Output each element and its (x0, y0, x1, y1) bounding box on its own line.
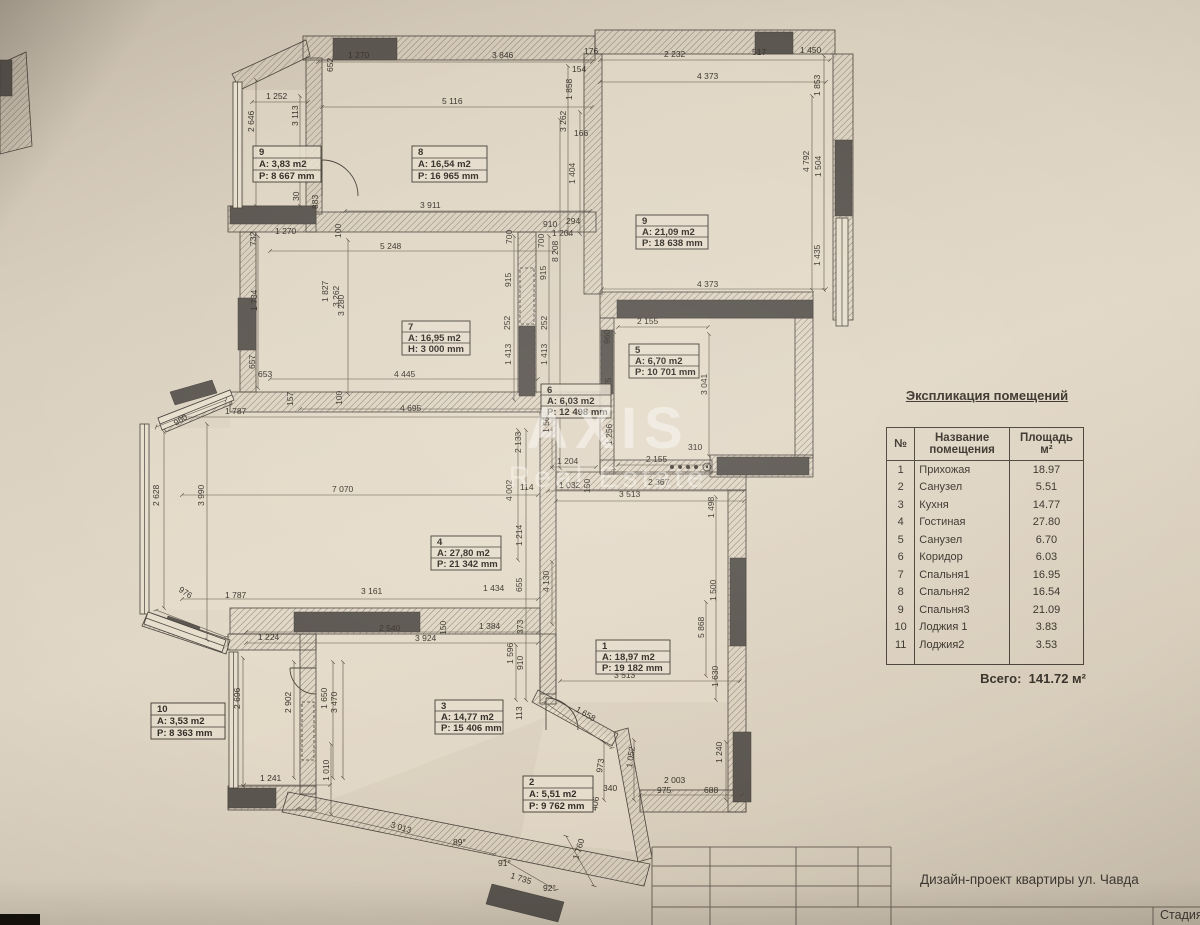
svg-text:1 252: 1 252 (266, 91, 288, 101)
room-area: A: 5,51 m2 (529, 789, 577, 800)
svg-text:294: 294 (566, 216, 580, 226)
cell-name: Гостиная (915, 514, 1010, 532)
col-header-num: № (887, 428, 915, 461)
cell-num: 2 (887, 479, 915, 497)
legend-row: 4Гостиная27.80 (887, 514, 1084, 532)
legend-row: 11Лоджия23.53 (887, 636, 1084, 654)
svg-text:4 130: 4 130 (541, 570, 551, 592)
room-perimeter: P: 10 701 mm (635, 367, 696, 378)
svg-text:1 204: 1 204 (557, 456, 579, 466)
svg-text:114: 114 (520, 482, 534, 492)
svg-text:1 413: 1 413 (539, 343, 549, 365)
svg-text:700: 700 (504, 230, 514, 244)
svg-text:1 650: 1 650 (319, 687, 329, 709)
svg-text:700: 700 (536, 234, 546, 248)
cell-num: 5 (887, 531, 915, 549)
svg-text:1 010: 1 010 (321, 759, 331, 781)
legend-total-label: Всего: (980, 671, 1021, 686)
room-number: 10 (157, 704, 168, 715)
svg-text:30: 30 (291, 191, 301, 201)
room-area: A: 27,80 m2 (437, 548, 490, 559)
svg-text:1 787: 1 787 (225, 590, 247, 600)
svg-text:4 002: 4 002 (504, 479, 514, 501)
room-number: 3 (441, 701, 446, 712)
room-label: 1 A: 18,97 m2 P: 19 182 mm (596, 640, 670, 674)
room-perimeter: P: 8 363 mm (157, 728, 212, 739)
svg-text:150: 150 (582, 479, 592, 493)
room-number: 9 (259, 147, 264, 158)
svg-text:100: 100 (333, 224, 343, 238)
svg-text:1 858: 1 858 (564, 78, 574, 100)
room-number: 2 (529, 777, 534, 788)
svg-text:1 241: 1 241 (260, 773, 282, 783)
legend-total-value: 141.72 м² (1029, 671, 1086, 686)
room-perimeter: P: 12 498 mm (547, 407, 608, 418)
svg-text:5 868: 5 868 (696, 616, 706, 638)
svg-text:113: 113 (514, 706, 524, 720)
legend-spacer-row (887, 654, 1084, 665)
project-title: Дизайн-проект квартиры ул. Чавда (920, 872, 1200, 887)
cell-num: 4 (887, 514, 915, 532)
svg-text:2 232: 2 232 (664, 49, 686, 59)
svg-text:1 504: 1 504 (813, 155, 823, 177)
cell-num: 6 (887, 549, 915, 567)
svg-text:915: 915 (503, 273, 513, 287)
svg-text:2 902: 2 902 (283, 691, 293, 713)
cell-name: Кухня (915, 496, 1010, 514)
room-label: 6 A: 6,03 m2 P: 12 498 mm (541, 384, 611, 418)
cell-area: 16.95 (1009, 566, 1083, 584)
svg-text:1 384: 1 384 (479, 621, 501, 631)
svg-text:1 270: 1 270 (348, 50, 370, 60)
room-label: 5 A: 6,70 m2 P: 10 701 mm (629, 344, 699, 378)
room-perimeter: P: 16 965 mm (418, 171, 479, 182)
legend: Экспликация помещений № Названиепомещени… (886, 388, 1088, 686)
svg-text:1 734: 1 734 (249, 289, 259, 311)
svg-text:1 256: 1 256 (604, 423, 614, 445)
room-number: 5 (635, 345, 641, 356)
cell-area: 5.51 (1009, 479, 1083, 497)
svg-text:653: 653 (258, 369, 272, 379)
svg-text:1 853: 1 853 (812, 74, 822, 96)
svg-text:2 003: 2 003 (664, 775, 686, 785)
cell-num: 7 (887, 566, 915, 584)
svg-text:150: 150 (438, 621, 448, 635)
svg-text:1 434: 1 434 (483, 583, 505, 593)
cell-area: 3.83 (1009, 619, 1083, 637)
legend-row: 5Санузел6.70 (887, 531, 1084, 549)
svg-text:166: 166 (574, 128, 588, 138)
svg-text:1 596: 1 596 (505, 642, 515, 664)
room-label: 8 A: 16,54 m2 P: 16 965 mm (412, 146, 487, 182)
svg-text:3 262: 3 262 (558, 110, 568, 132)
cell-name: Спальня2 (915, 584, 1010, 602)
svg-text:4 792: 4 792 (801, 150, 811, 172)
svg-text:1 240: 1 240 (714, 741, 724, 763)
cell-area: 3.53 (1009, 636, 1083, 654)
svg-text:2 367: 2 367 (648, 477, 670, 487)
svg-text:975: 975 (657, 785, 671, 795)
room-label: 7 A: 16,95 m2 H: 3 000 mm (402, 321, 470, 355)
room-perimeter: P: 8 667 mm (259, 171, 314, 182)
svg-text:4 373: 4 373 (697, 71, 719, 81)
legend-row: 7Спальня116.95 (887, 566, 1084, 584)
legend-row: 6Коридор6.03 (887, 549, 1084, 567)
svg-text:3 513: 3 513 (619, 489, 641, 499)
svg-text:2 155: 2 155 (637, 316, 659, 326)
svg-text:4 695: 4 695 (400, 403, 422, 413)
legend-row: 1Прихожая18.97 (887, 461, 1084, 479)
room-number: 7 (408, 322, 413, 333)
cell-area: 27.80 (1009, 514, 1083, 532)
svg-text:1 224: 1 224 (258, 632, 280, 642)
cell-area: 6.03 (1009, 549, 1083, 567)
room-perimeter: P: 9 762 mm (529, 801, 584, 812)
cell-name: Спальня3 (915, 601, 1010, 619)
svg-text:517: 517 (752, 47, 766, 57)
svg-text:657: 657 (247, 355, 257, 369)
svg-text:1 404: 1 404 (567, 162, 577, 184)
svg-text:8 208: 8 208 (550, 240, 560, 262)
svg-text:4 445: 4 445 (394, 369, 416, 379)
cell-area: 16.54 (1009, 584, 1083, 602)
svg-text:2 540: 2 540 (379, 623, 401, 633)
svg-text:2 646: 2 646 (246, 110, 256, 132)
col-header-name: Названиепомещения (915, 428, 1010, 461)
cell-name: Прихожая (915, 461, 1010, 479)
room-label: 2 A: 5,51 m2 P: 9 762 mm (523, 776, 593, 812)
svg-text:1 214: 1 214 (514, 524, 524, 546)
col-header-area: Площадьм² (1009, 428, 1083, 461)
room-area: A: 6,70 m2 (635, 356, 683, 367)
svg-text:910: 910 (515, 656, 525, 670)
svg-text:3 846: 3 846 (492, 50, 514, 60)
cell-num: 10 (887, 619, 915, 637)
svg-text:340: 340 (603, 783, 617, 793)
room-area: A: 14,77 m2 (441, 712, 494, 723)
room-number: 8 (418, 147, 423, 158)
svg-text:2 696: 2 696 (232, 687, 242, 709)
room-perimeter: P: 21 342 mm (437, 559, 498, 570)
svg-text:4 373: 4 373 (697, 279, 719, 289)
room-area: A: 3,53 m2 (157, 716, 205, 727)
floor-plan-photo: 652 1 270 3 846 5 116 176 154 2 232 517 … (0, 0, 1200, 925)
svg-text:3 990: 3 990 (196, 484, 206, 506)
svg-text:3 924: 3 924 (415, 633, 437, 643)
svg-text:5 116: 5 116 (442, 96, 463, 106)
svg-text:1 498: 1 498 (706, 496, 716, 518)
svg-text:1 500: 1 500 (708, 579, 718, 601)
svg-text:3 041: 3 041 (699, 373, 709, 395)
svg-text:176: 176 (584, 46, 598, 56)
legend-row: 2Санузел5.51 (887, 479, 1084, 497)
svg-text:688: 688 (704, 785, 718, 795)
cell-name: Санузел (915, 531, 1010, 549)
svg-text:1 204: 1 204 (552, 228, 574, 238)
svg-text:3 911: 3 911 (420, 200, 441, 210)
svg-text:1 735: 1 735 (509, 870, 533, 886)
room-label: 9 A: 3,83 m2 P: 8 667 mm (253, 146, 321, 182)
cell-name: Спальня1 (915, 566, 1010, 584)
legend-row: 10Лоджия 13.83 (887, 619, 1084, 637)
svg-text:1 413: 1 413 (503, 343, 513, 365)
cell-area: 21.09 (1009, 601, 1083, 619)
room-area: A: 16,54 m2 (418, 159, 471, 170)
room-perimeter: H: 3 000 mm (408, 344, 464, 355)
svg-text:100: 100 (334, 391, 344, 405)
svg-text:5 248: 5 248 (380, 241, 402, 251)
svg-text:91°: 91° (498, 858, 511, 868)
svg-text:92°: 92° (543, 883, 556, 893)
svg-text:3 161: 3 161 (361, 586, 383, 596)
cell-area: 18.97 (1009, 461, 1083, 479)
svg-text:1 827: 1 827 (320, 280, 330, 302)
svg-text:89°: 89° (453, 837, 466, 847)
cell-name: Санузел (915, 479, 1010, 497)
room-area: A: 21,09 m2 (642, 227, 695, 238)
svg-text:3 470: 3 470 (329, 691, 339, 713)
svg-text:373: 373 (515, 620, 525, 634)
legend-table: № Названиепомещения Площадьм² 1Прихожая1… (886, 427, 1084, 665)
svg-text:157: 157 (285, 392, 295, 406)
room-number: 1 (602, 641, 608, 652)
svg-text:960: 960 (602, 330, 612, 344)
svg-text:2 155: 2 155 (646, 454, 668, 464)
svg-text:915: 915 (538, 266, 548, 280)
room-area: A: 3,83 m2 (259, 159, 307, 170)
svg-text:154: 154 (572, 64, 586, 74)
room-number: 6 (547, 385, 552, 396)
svg-text:3 280: 3 280 (336, 294, 346, 316)
svg-text:1 032: 1 032 (559, 480, 581, 490)
room-perimeter: P: 19 182 mm (602, 663, 663, 674)
svg-text:1 270: 1 270 (275, 226, 297, 236)
cell-name: Коридор (915, 549, 1010, 567)
cell-name: Лоджия 1 (915, 619, 1010, 637)
room-label: 3 A: 14,77 m2 P: 15 406 mm (435, 700, 503, 734)
svg-text:652: 652 (325, 58, 335, 72)
svg-text:2 133: 2 133 (513, 431, 523, 453)
svg-text:883: 883 (310, 195, 320, 209)
svg-text:252: 252 (539, 316, 549, 330)
room-label: 4 A: 27,80 m2 P: 21 342 mm (431, 536, 501, 570)
room-number: 9 (642, 216, 647, 227)
legend-row: 8Спальня216.54 (887, 584, 1084, 602)
svg-text:973: 973 (594, 758, 606, 774)
svg-text:7 070: 7 070 (332, 484, 354, 494)
svg-text:655: 655 (514, 578, 524, 592)
cell-area: 6.70 (1009, 531, 1083, 549)
legend-header-row: № Названиепомещения Площадьм² (887, 428, 1084, 461)
svg-text:1 630: 1 630 (710, 665, 720, 687)
legend-row: 9Спальня321.09 (887, 601, 1084, 619)
svg-text:1 435: 1 435 (812, 244, 822, 266)
room-area: A: 6,03 m2 (547, 396, 595, 407)
room-perimeter: P: 18 638 mm (642, 238, 703, 249)
svg-text:1 450: 1 450 (800, 45, 822, 55)
svg-text:732: 732 (248, 232, 258, 246)
svg-text:1 787: 1 787 (225, 406, 247, 416)
svg-text:252: 252 (502, 316, 512, 330)
cell-name: Лоджия2 (915, 636, 1010, 654)
cell-num: 1 (887, 461, 915, 479)
cell-num: 8 (887, 584, 915, 602)
room-area: A: 16,95 m2 (408, 333, 461, 344)
legend-title: Экспликация помещений (886, 388, 1088, 403)
cell-area: 14.77 (1009, 496, 1083, 514)
legend-total: Всего: 141.72 м² (886, 671, 1088, 686)
svg-text:3 113: 3 113 (290, 105, 300, 126)
cell-num: 9 (887, 601, 915, 619)
cell-num: 11 (887, 636, 915, 654)
room-number: 4 (437, 537, 443, 548)
room-perimeter: P: 15 406 mm (441, 723, 502, 734)
room-label: 9 A: 21,09 m2 P: 18 638 mm (636, 215, 708, 249)
room-area: A: 18,97 m2 (602, 652, 655, 663)
room-label: 10 A: 3,53 m2 P: 8 363 mm (151, 703, 225, 739)
svg-text:2 628: 2 628 (151, 484, 161, 506)
svg-text:310: 310 (688, 442, 702, 452)
cell-num: 3 (887, 496, 915, 514)
stage-label: Стадия (1160, 908, 1200, 922)
legend-row: 3Кухня14.77 (887, 496, 1084, 514)
